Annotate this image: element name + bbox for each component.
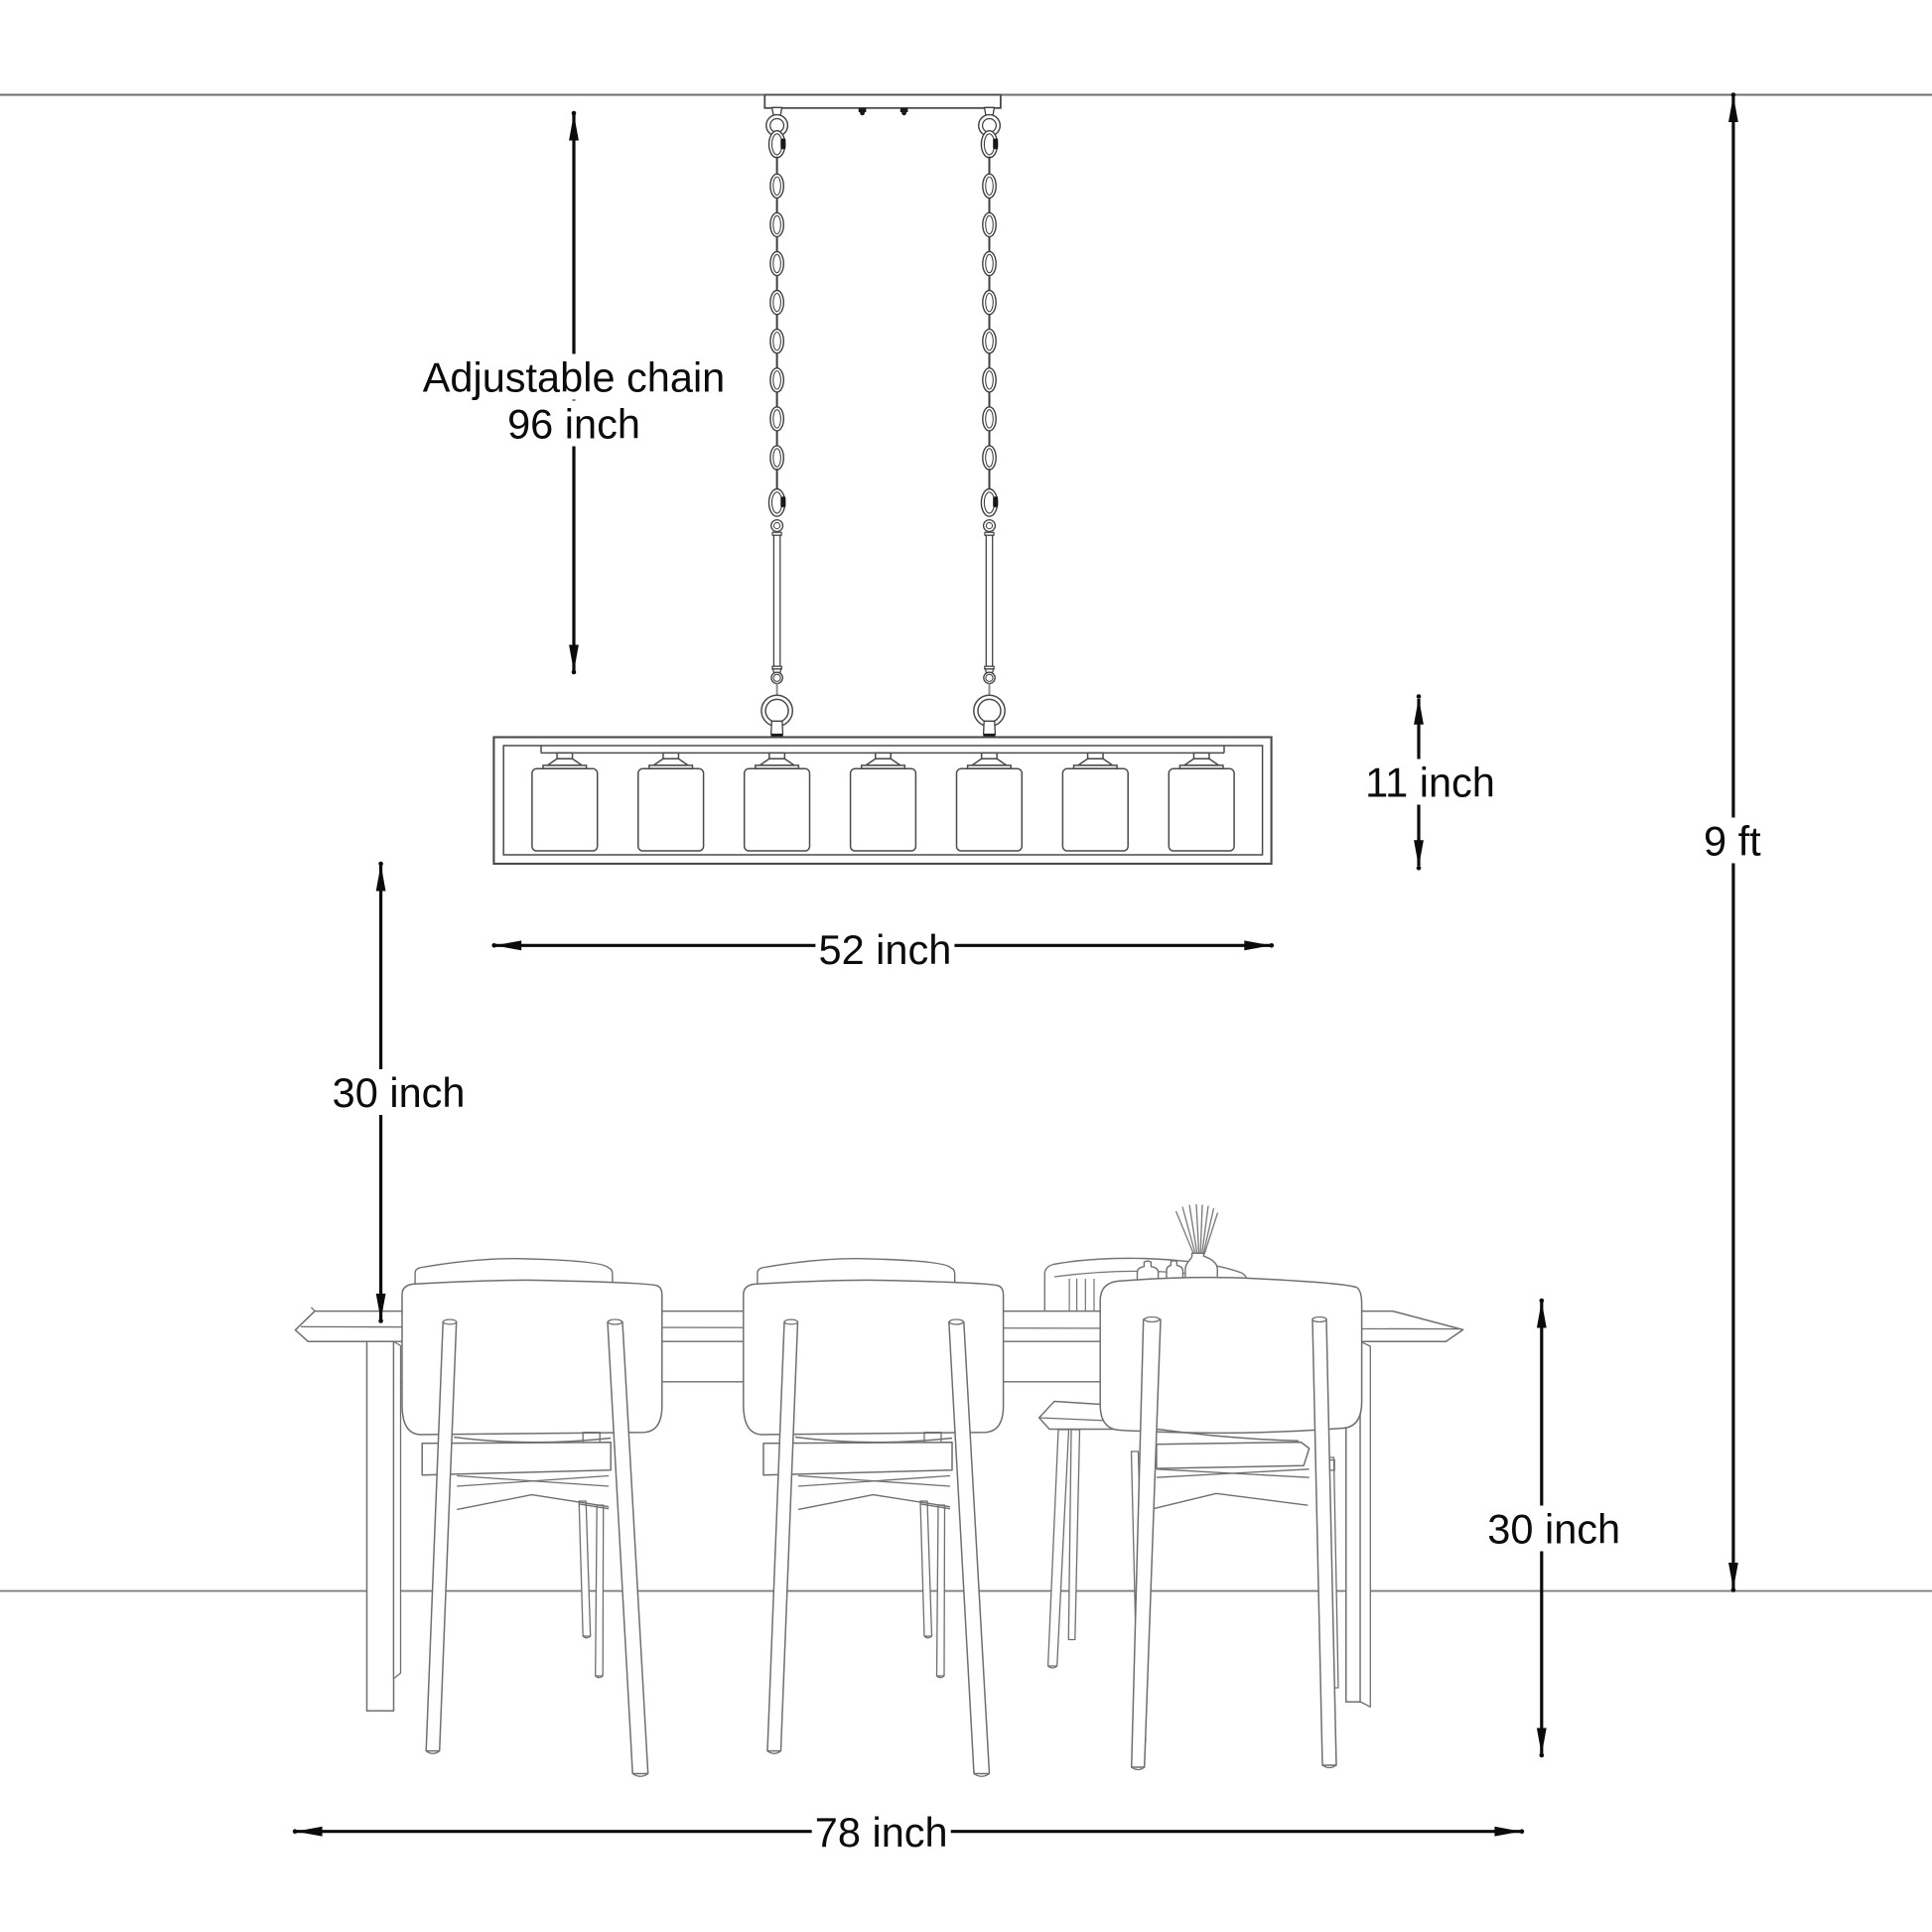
- svg-text:Adjustable chain: Adjustable chain: [423, 354, 726, 401]
- svg-text:9 ft: 9 ft: [1704, 818, 1761, 865]
- svg-text:52 inch: 52 inch: [818, 926, 951, 973]
- svg-text:11 inch: 11 inch: [1365, 759, 1495, 806]
- svg-text:96 inch: 96 inch: [507, 401, 640, 448]
- svg-text:78 inch: 78 inch: [815, 1809, 948, 1856]
- svg-text:30 inch: 30 inch: [333, 1069, 466, 1116]
- svg-text:30 inch: 30 inch: [1487, 1506, 1620, 1553]
